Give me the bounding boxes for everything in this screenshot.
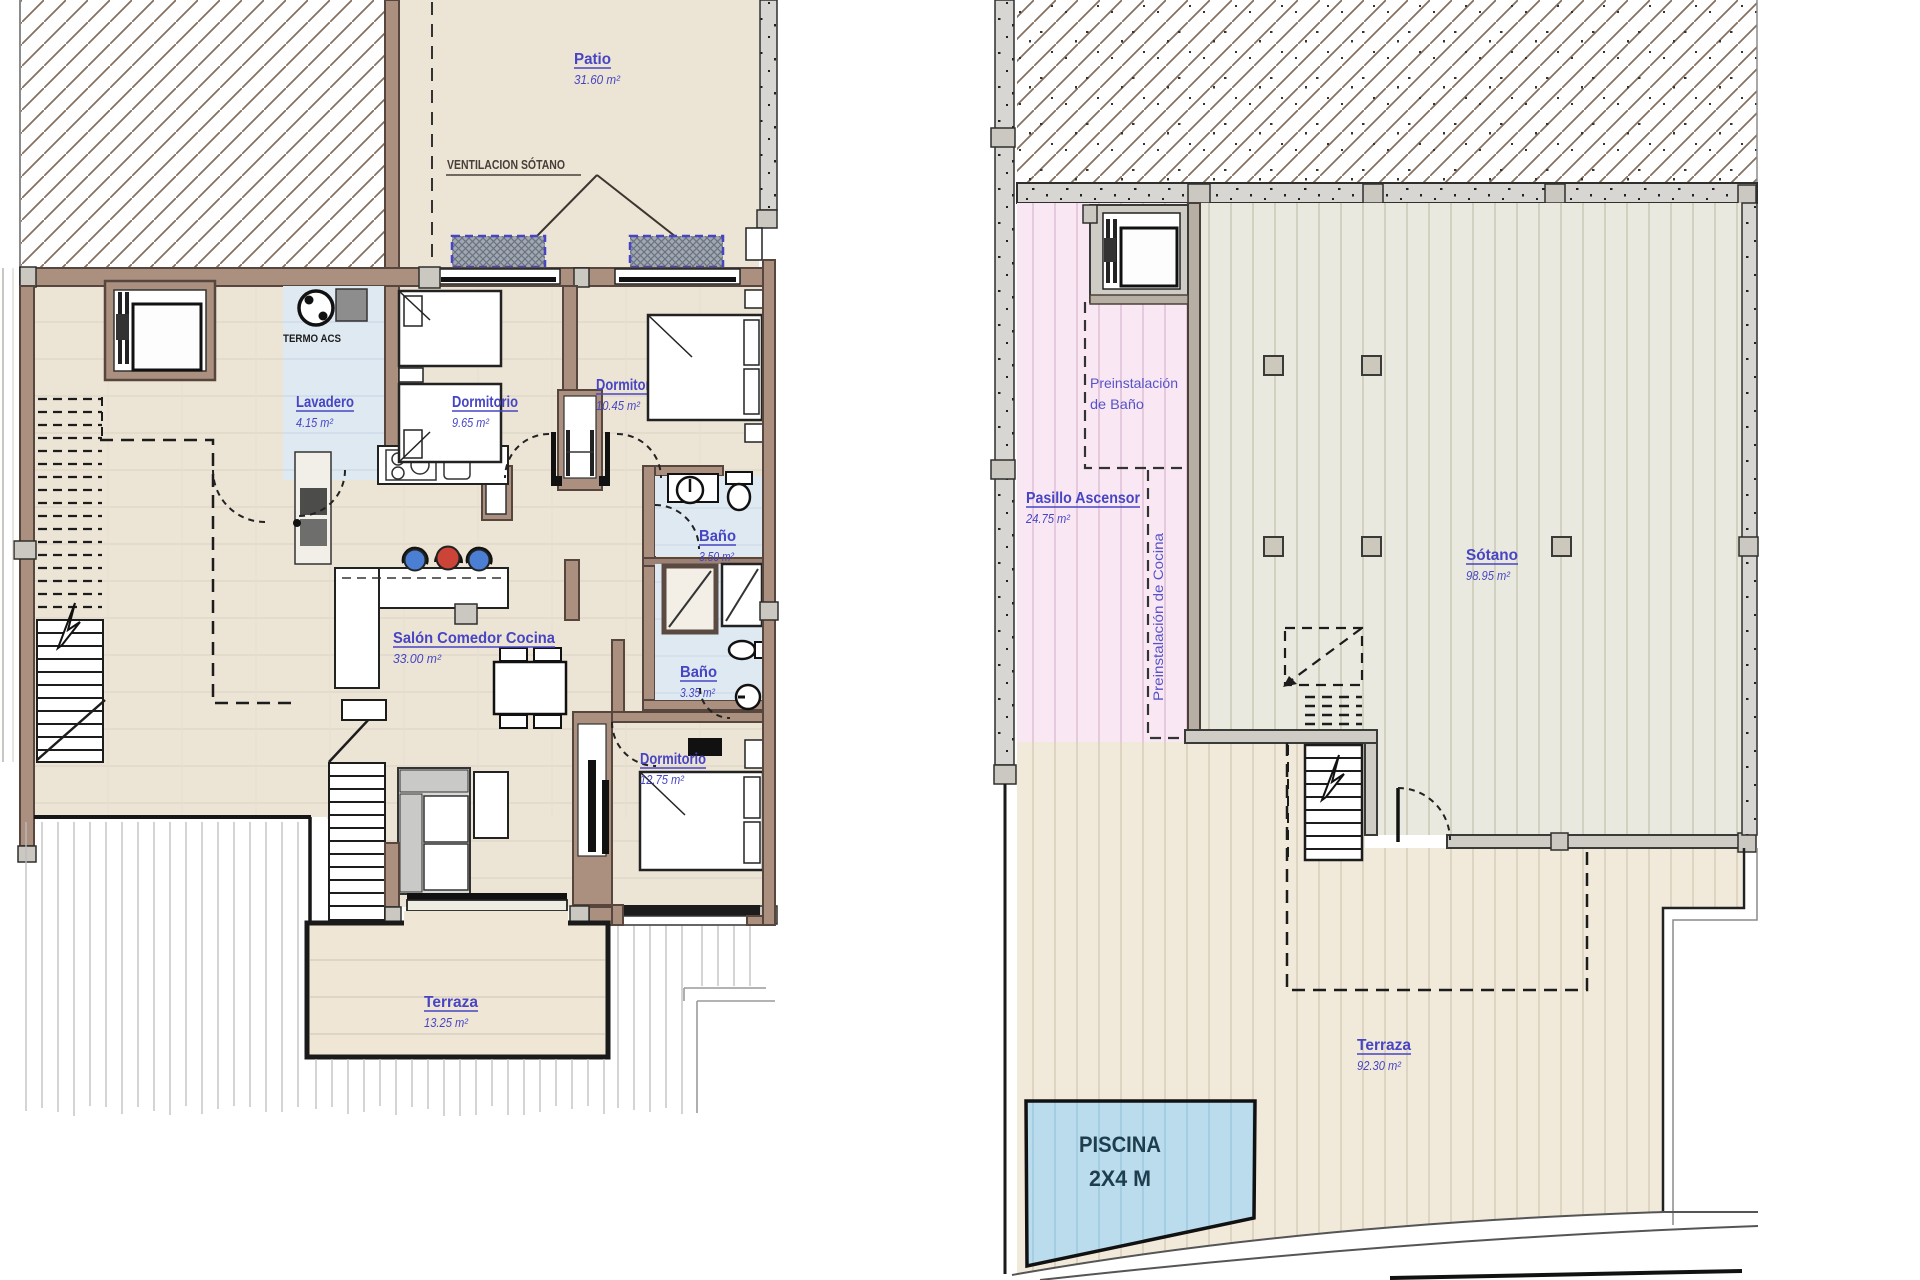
svg-text:Terraza: Terraza [1357,1037,1411,1054]
svg-text:VENTILACION SÓTANO: VENTILACION SÓTANO [447,157,565,172]
svg-text:33.00 m²: 33.00 m² [393,651,442,666]
svg-text:Dormitorio: Dormitorio [640,751,706,768]
svg-text:TERMO ACS: TERMO ACS [283,333,341,345]
svg-text:31.60 m²: 31.60 m² [574,72,621,87]
svg-text:Pasillo Ascensor: Pasillo Ascensor [1026,490,1140,507]
svg-text:Sótano: Sótano [1466,547,1518,564]
svg-text:Preinstalación: Preinstalación [1090,375,1178,391]
svg-text:Salón Comedor Cocina: Salón Comedor Cocina [393,630,555,647]
svg-text:de Baño: de Baño [1090,396,1144,412]
svg-text:9.65 m²: 9.65 m² [452,415,490,430]
svg-text:Patio: Patio [574,51,611,68]
svg-text:10.45 m²: 10.45 m² [596,398,641,413]
svg-text:24.75 m²: 24.75 m² [1025,511,1070,526]
svg-text:Lavadero: Lavadero [296,394,354,411]
svg-text:98.95 m²: 98.95 m² [1466,568,1511,583]
svg-text:13.25 m²: 13.25 m² [424,1015,469,1030]
svg-text:Terraza: Terraza [424,994,478,1011]
svg-text:4.15 m²: 4.15 m² [296,415,334,430]
svg-text:3.50 m²: 3.50 m² [699,549,735,564]
svg-text:Dormitorio: Dormitorio [452,394,518,411]
svg-text:12.75 m²: 12.75 m² [640,772,685,787]
svg-text:PISCINA: PISCINA [1079,1132,1161,1157]
svg-text:Baño: Baño [699,528,736,545]
svg-text:2X4 M: 2X4 M [1089,1166,1151,1191]
svg-text:Preinstalación de Cocina: Preinstalación de Cocina [1150,533,1166,701]
svg-text:92.30 m²: 92.30 m² [1357,1058,1402,1073]
svg-text:3.35 m²: 3.35 m² [680,685,716,700]
svg-text:Baño: Baño [680,664,717,681]
